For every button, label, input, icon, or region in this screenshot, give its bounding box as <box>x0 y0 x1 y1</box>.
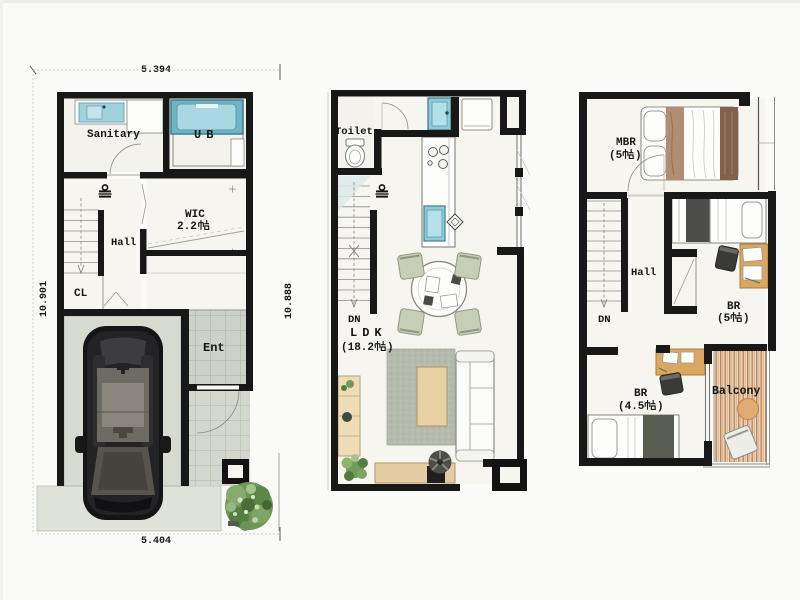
svg-text:5.404: 5.404 <box>141 536 171 547</box>
svg-text:DN: DN <box>598 314 611 326</box>
svg-text:Toilet: Toilet <box>335 126 373 138</box>
svg-text:5.394: 5.394 <box>141 65 171 76</box>
svg-text:Hall: Hall <box>631 267 656 279</box>
svg-text:): ) <box>657 401 664 413</box>
svg-text:WIC: WIC <box>185 209 205 221</box>
svg-text:(18.2: (18.2 <box>341 342 374 354</box>
svg-text:Balcony: Balcony <box>712 385 760 398</box>
svg-text:): ) <box>635 150 642 162</box>
svg-text:2.2: 2.2 <box>177 221 197 233</box>
svg-text:10.888: 10.888 <box>284 283 295 319</box>
svg-text:UB: UB <box>194 128 218 142</box>
svg-text:(4.5: (4.5 <box>618 401 645 413</box>
svg-text:BR: BR <box>634 388 648 400</box>
svg-text:): ) <box>387 342 394 354</box>
svg-text:(5: (5 <box>717 313 731 325</box>
svg-text:MBR: MBR <box>616 137 636 149</box>
svg-text:Ent: Ent <box>203 341 225 355</box>
svg-text:): ) <box>743 313 750 325</box>
svg-text:BR: BR <box>727 301 741 313</box>
svg-text:LDK: LDK <box>350 326 387 340</box>
svg-text:DN: DN <box>348 314 361 326</box>
svg-text:Sanitary: Sanitary <box>87 129 140 141</box>
svg-text:10.901: 10.901 <box>39 281 50 317</box>
svg-text:Hall: Hall <box>111 237 136 249</box>
svg-text:CL: CL <box>74 288 88 300</box>
svg-text:(5: (5 <box>609 150 623 162</box>
